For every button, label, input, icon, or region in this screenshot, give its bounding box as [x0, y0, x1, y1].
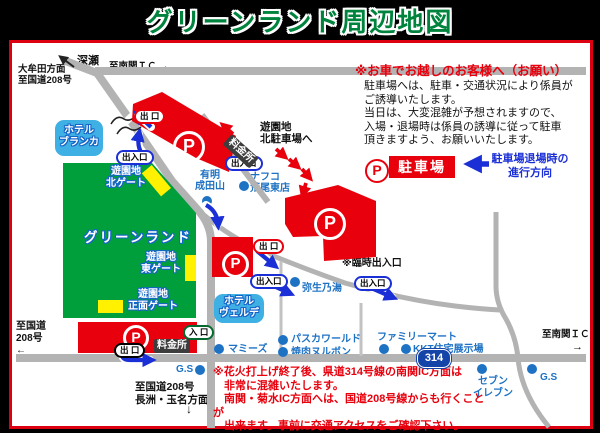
hotel-verde-box: ホテル ヴェルデ [214, 294, 264, 323]
parking-p-north: P [173, 131, 205, 163]
exit-oval-middle: 出 口 [253, 239, 284, 254]
inout-oval-north: 出入口 [116, 150, 154, 165]
hotel-blanca-box: ホテル ブランカ [55, 120, 103, 156]
exit-oval-south: 出 口 [114, 343, 145, 358]
road-congestion-note: ※花火打上げ終了後、県道314号線の南関IC方面は 非常に混雑いたします。 南関… [213, 366, 485, 433]
north-gate-label: 遊園地 北ゲート [104, 166, 148, 189]
entrance-oval-south: 入 口 [183, 325, 214, 340]
notice-title: ※お車でお越しのお客様へ（お願い） [355, 60, 567, 79]
notice-body: 駐車場へは、駐車・交通状況により係員が ご誘導いたします。 当日は、大変混雑が予… [364, 80, 596, 148]
parking-p-east: P [314, 208, 346, 240]
parking-p-middle: P [222, 251, 249, 278]
hotel-blanca-label: ホテル ブランカ [55, 125, 103, 149]
tollgate-label-south: 料金所 [154, 339, 190, 353]
inout-oval-middle: 出入口 [250, 274, 288, 289]
park-name: グリーンランド [84, 226, 192, 246]
hotel-verde-label: ホテル ヴェルデ [214, 296, 264, 320]
map-screenshot: グリーンランド周辺地図 [0, 0, 600, 433]
east-gate-label: 遊園地 東ゲート [139, 252, 183, 275]
exit-oval-north: 出 口 [134, 109, 165, 124]
front-gate [98, 300, 123, 313]
route-314-badge: 314 [417, 349, 451, 368]
inout-oval-temp: 出入口 [354, 276, 392, 291]
legend-p-icon: P [365, 159, 389, 183]
east-gate [185, 255, 196, 281]
front-gate-label: 遊園地 正面ゲート [124, 289, 182, 312]
